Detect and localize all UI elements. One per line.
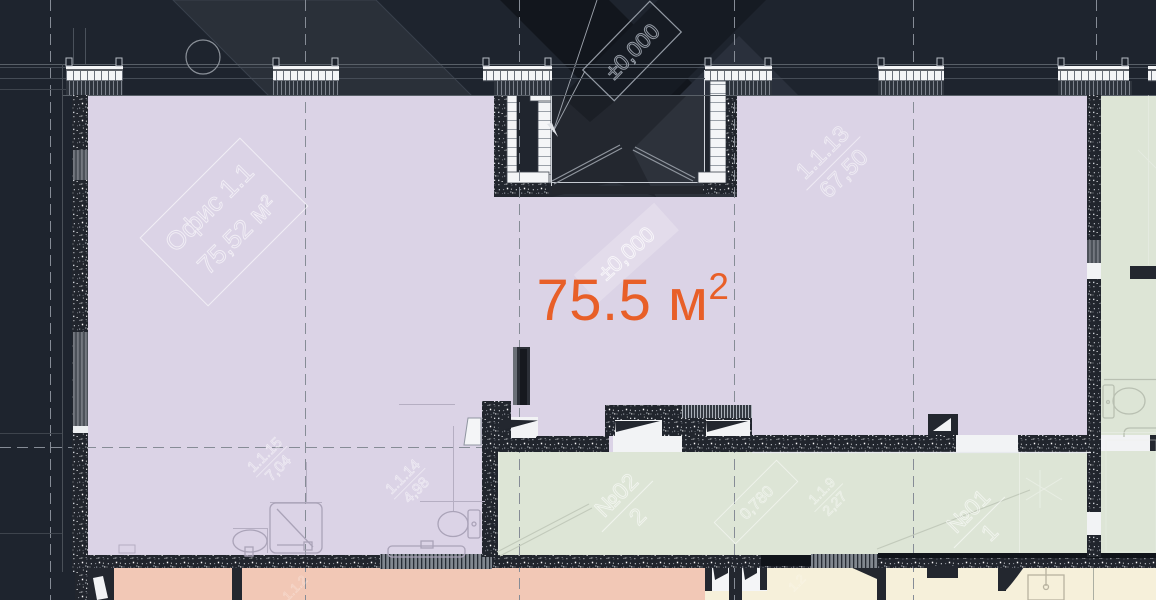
svg-text:75.5 м2: 75.5 м2 bbox=[537, 266, 730, 333]
